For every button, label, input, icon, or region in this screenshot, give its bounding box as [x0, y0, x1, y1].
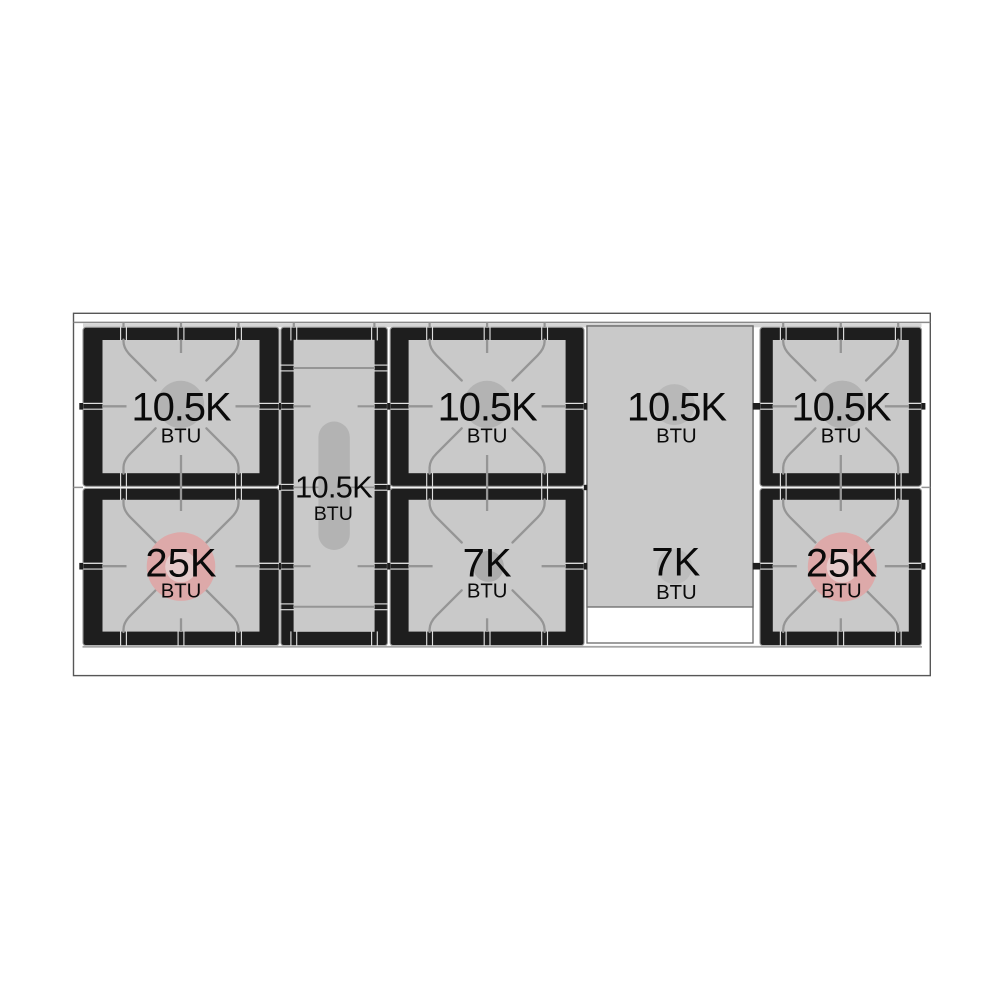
svg-text:BTU: BTU	[656, 582, 697, 604]
svg-text:BTU: BTU	[161, 426, 202, 448]
svg-text:25K: 25K	[806, 541, 877, 585]
svg-text:25K: 25K	[145, 541, 216, 585]
svg-text:BTU: BTU	[467, 426, 508, 448]
svg-text:BTU: BTU	[161, 581, 202, 603]
svg-text:BTU: BTU	[821, 581, 862, 603]
svg-text:7K: 7K	[463, 541, 512, 585]
svg-text:7K: 7K	[651, 541, 700, 585]
svg-text:10.5K: 10.5K	[627, 385, 727, 429]
svg-text:BTU: BTU	[656, 426, 697, 448]
svg-text:BTU: BTU	[314, 503, 353, 525]
svg-text:10.5K: 10.5K	[295, 469, 373, 504]
svg-text:BTU: BTU	[821, 426, 862, 448]
svg-text:10.5K: 10.5K	[438, 385, 538, 429]
svg-text:10.5K: 10.5K	[131, 385, 231, 429]
svg-text:BTU: BTU	[467, 581, 508, 603]
svg-text:10.5K: 10.5K	[791, 385, 891, 429]
